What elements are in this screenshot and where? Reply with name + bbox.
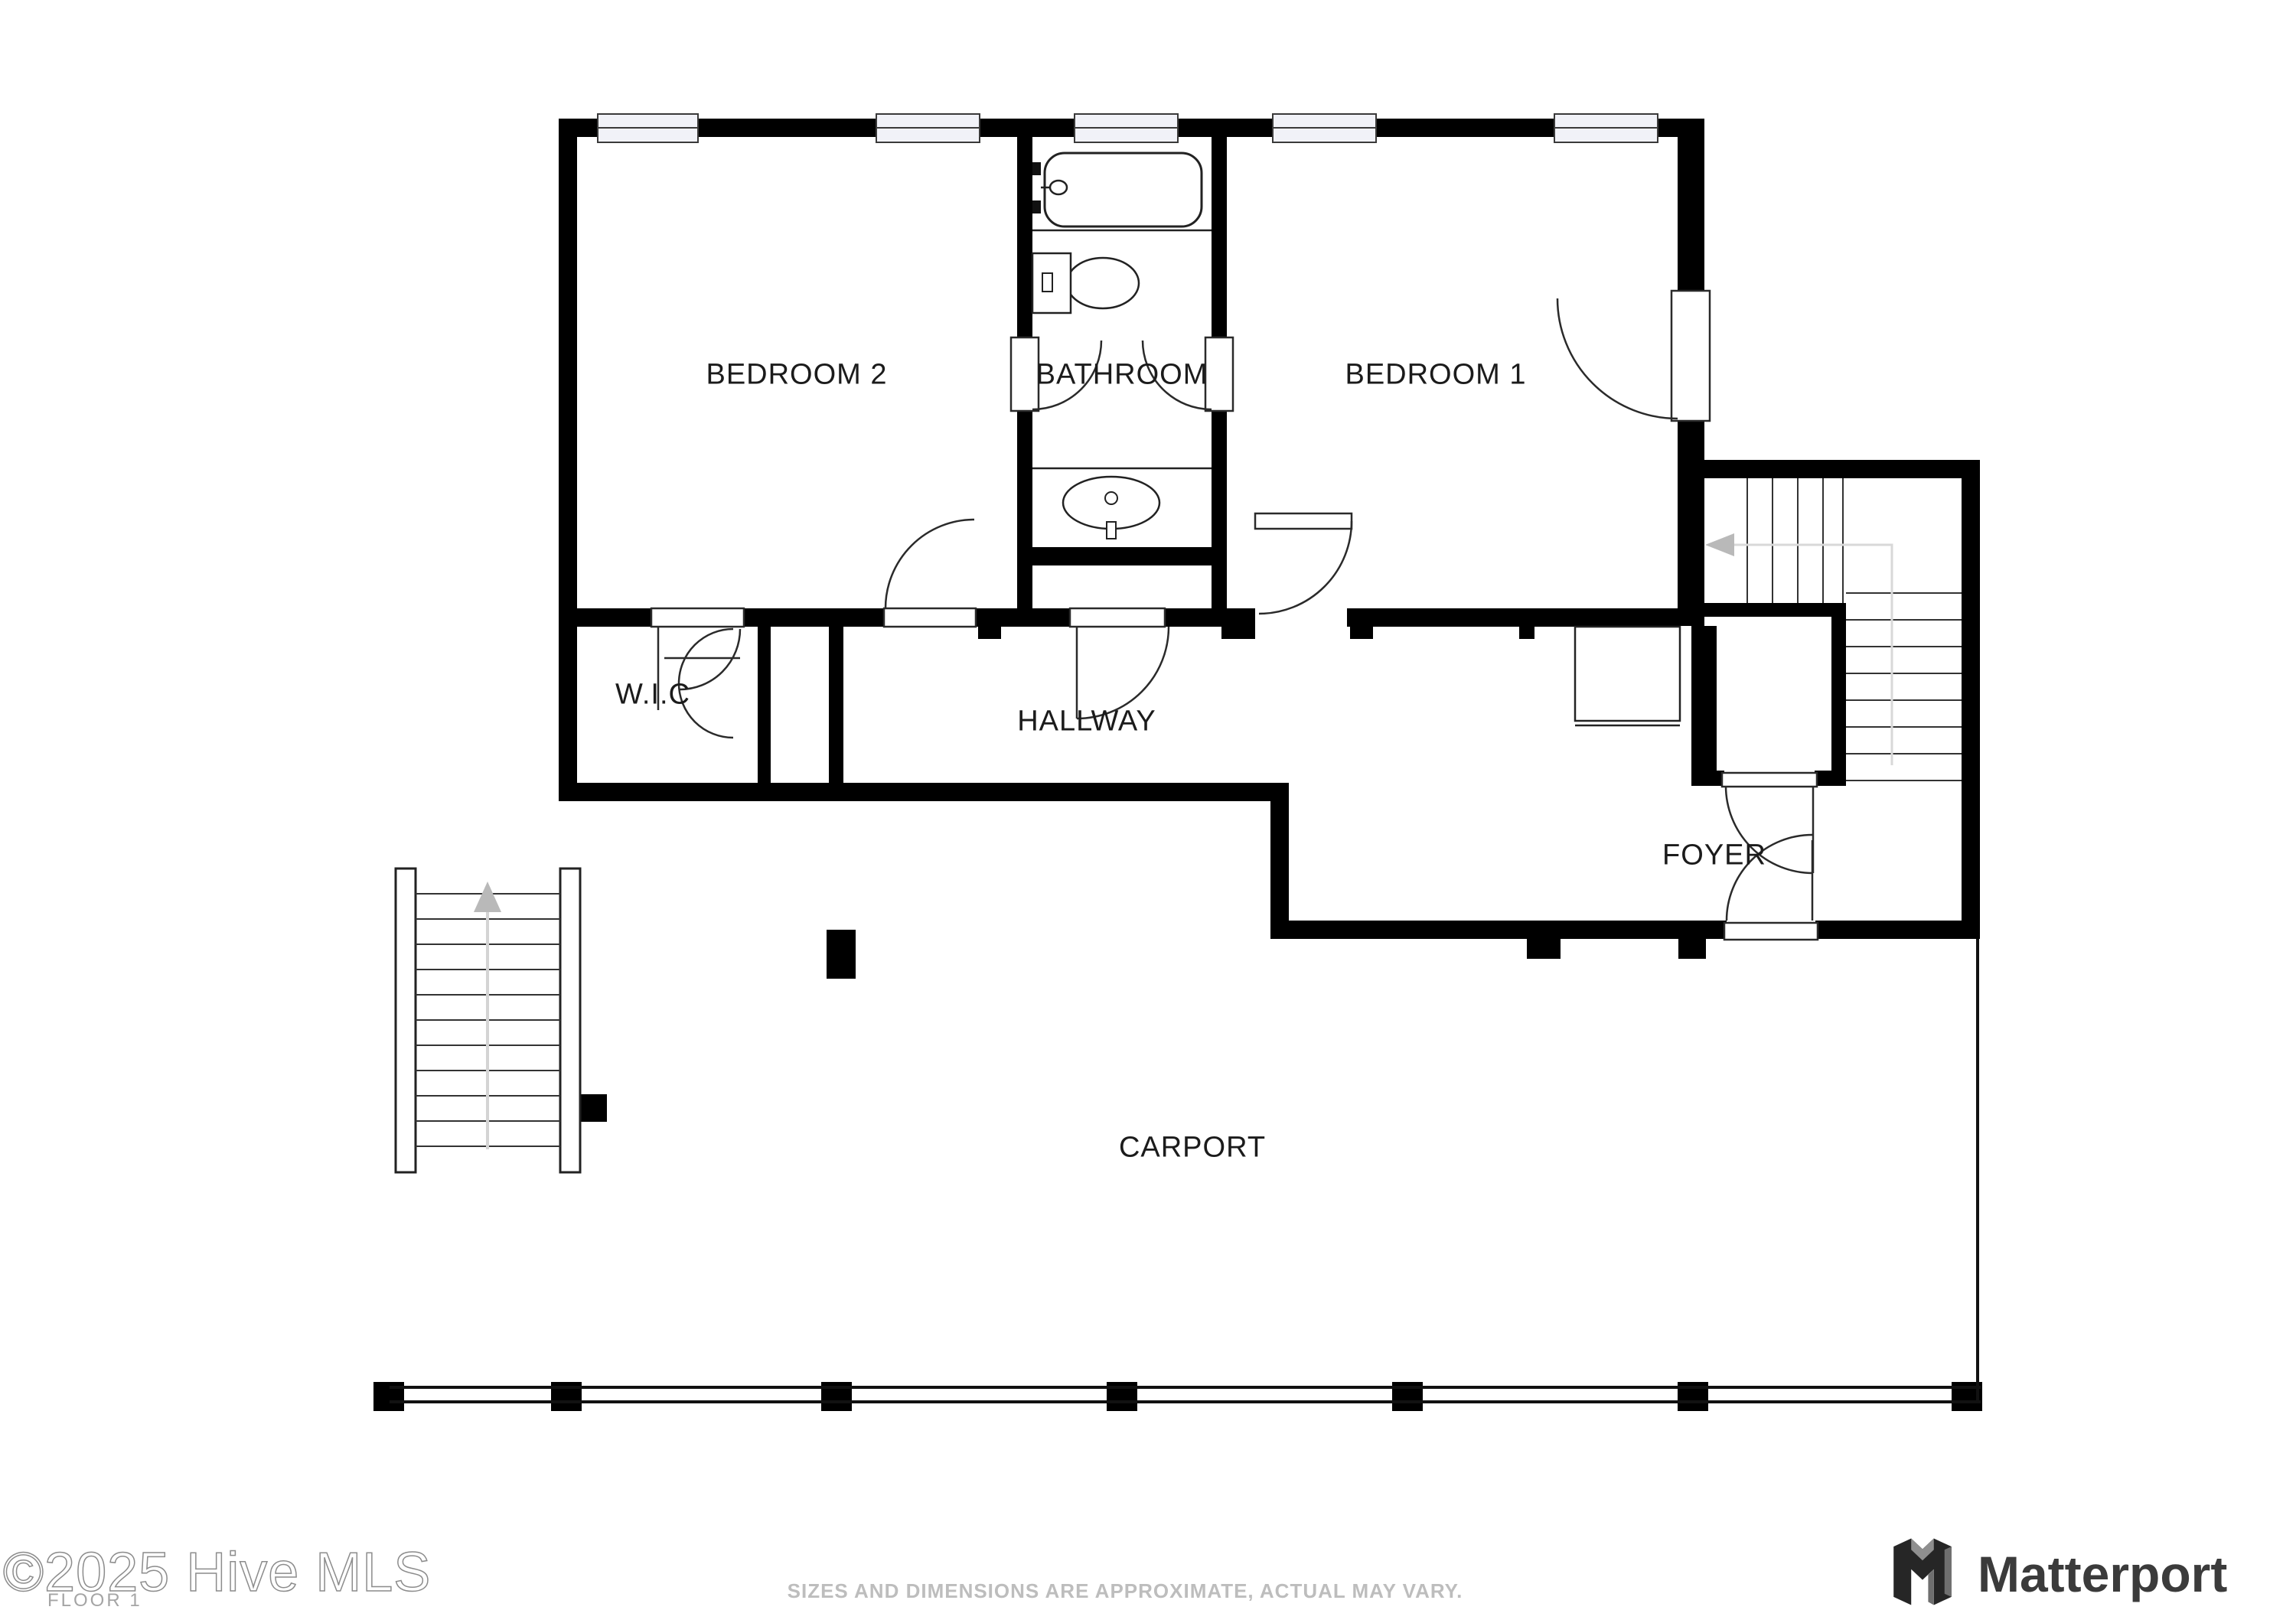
wall-wic-right xyxy=(758,627,771,783)
room-label-bedroom2: BEDROOM 2 xyxy=(706,359,887,392)
jamb-stub-1 xyxy=(978,627,1001,639)
wall-hallway-top-1 xyxy=(559,608,653,627)
wall-foyer-bottom-west xyxy=(1270,921,1727,939)
door-leaf-bedroom2 xyxy=(884,608,976,627)
floor-plan-geometry xyxy=(0,0,2296,1623)
floor-plan: BEDROOM 2 BATHROOM BEDROOM 1 W.I.C HALLW… xyxy=(0,0,2296,1623)
wall-hallway-top-5 xyxy=(1347,608,1678,627)
door-leaf-closet xyxy=(1722,773,1817,787)
wall-hallway-top-4 xyxy=(1163,608,1255,627)
wall-bathroom-right-b xyxy=(1212,409,1227,627)
up-arrow-icon xyxy=(474,882,501,912)
jamb-stub-3 xyxy=(1350,627,1373,639)
wall-bathroom-right-a xyxy=(1212,137,1227,341)
room-label-bathroom: BATHROOM xyxy=(1036,359,1208,392)
jamb-stub-4 xyxy=(1519,626,1534,639)
left-arrow-icon xyxy=(1705,533,1734,556)
wall-divider-a xyxy=(1678,119,1704,295)
door-leaf-wic xyxy=(651,608,744,627)
room-label-hallway: HALLWAY xyxy=(1017,706,1156,738)
interior-staircase xyxy=(1747,478,1962,781)
room-label-wic: W.I.C xyxy=(615,679,690,712)
support-post-stairs xyxy=(578,1094,607,1122)
bathtub-icon xyxy=(1032,153,1202,227)
wall-niche-right xyxy=(829,627,843,783)
wall-left xyxy=(559,119,577,801)
wall-closet-bottom-a xyxy=(1691,771,1724,786)
support-post-yard xyxy=(827,930,856,979)
cabinet-icon xyxy=(1575,627,1680,725)
walls xyxy=(373,119,1982,1411)
matterport-logo-icon xyxy=(1887,1537,1958,1607)
door-leaf-jj-right xyxy=(1205,337,1233,411)
wall-stair-top xyxy=(1704,460,1980,478)
wall-closet-left xyxy=(1691,626,1717,786)
wall-bathroom-bottom xyxy=(1032,547,1212,565)
wall-hallway-top-2 xyxy=(744,608,885,627)
door-leaf-bathroom xyxy=(1070,608,1165,627)
wall-closet-top xyxy=(1691,603,1846,617)
matterport-wordmark: Matterport xyxy=(1978,1545,2227,1603)
wall-bathroom-left-b xyxy=(1017,409,1032,627)
jamb-stub-2 xyxy=(1221,627,1255,639)
wall-closet-bottom-b xyxy=(1815,771,1846,786)
post-stub-2 xyxy=(1678,939,1706,959)
wall-step xyxy=(1270,783,1289,939)
sink-icon xyxy=(1063,477,1159,539)
wall-bottom-west xyxy=(559,783,1289,801)
floor-number-label: FLOOR 1 xyxy=(47,1590,142,1612)
room-label-carport: CARPORT xyxy=(1119,1132,1266,1165)
wall-bathroom-left-a xyxy=(1017,137,1032,341)
door-leaf-bedroom1 xyxy=(1255,513,1352,529)
door-arc-bedroom1 xyxy=(1259,521,1352,614)
room-label-bedroom1: BEDROOM 1 xyxy=(1345,359,1526,392)
wall-closet-right xyxy=(1831,603,1846,786)
exterior-staircase xyxy=(396,869,580,1172)
toilet-icon xyxy=(1032,253,1139,313)
wall-foyer-bottom-east xyxy=(1815,921,1980,939)
wall-divider-b xyxy=(1678,416,1704,626)
matterport-logo: Matterport xyxy=(1887,1537,2227,1607)
door-arc-bedroom1-ext xyxy=(1557,298,1678,419)
door-leaf-bedroom1-ext xyxy=(1671,291,1710,421)
door-leaf-jj-left xyxy=(1011,337,1039,411)
wall-stair-right xyxy=(1962,460,1980,939)
door-arc-bedroom2 xyxy=(885,520,974,608)
post-stub-1 xyxy=(1527,939,1561,959)
room-label-foyer: FOYER xyxy=(1662,839,1766,872)
dimensions-disclaimer: SIZES AND DIMENSIONS ARE APPROXIMATE, AC… xyxy=(513,1579,1737,1603)
door-leaf-entry xyxy=(1724,923,1818,940)
carport-porch-line xyxy=(390,939,1981,1402)
